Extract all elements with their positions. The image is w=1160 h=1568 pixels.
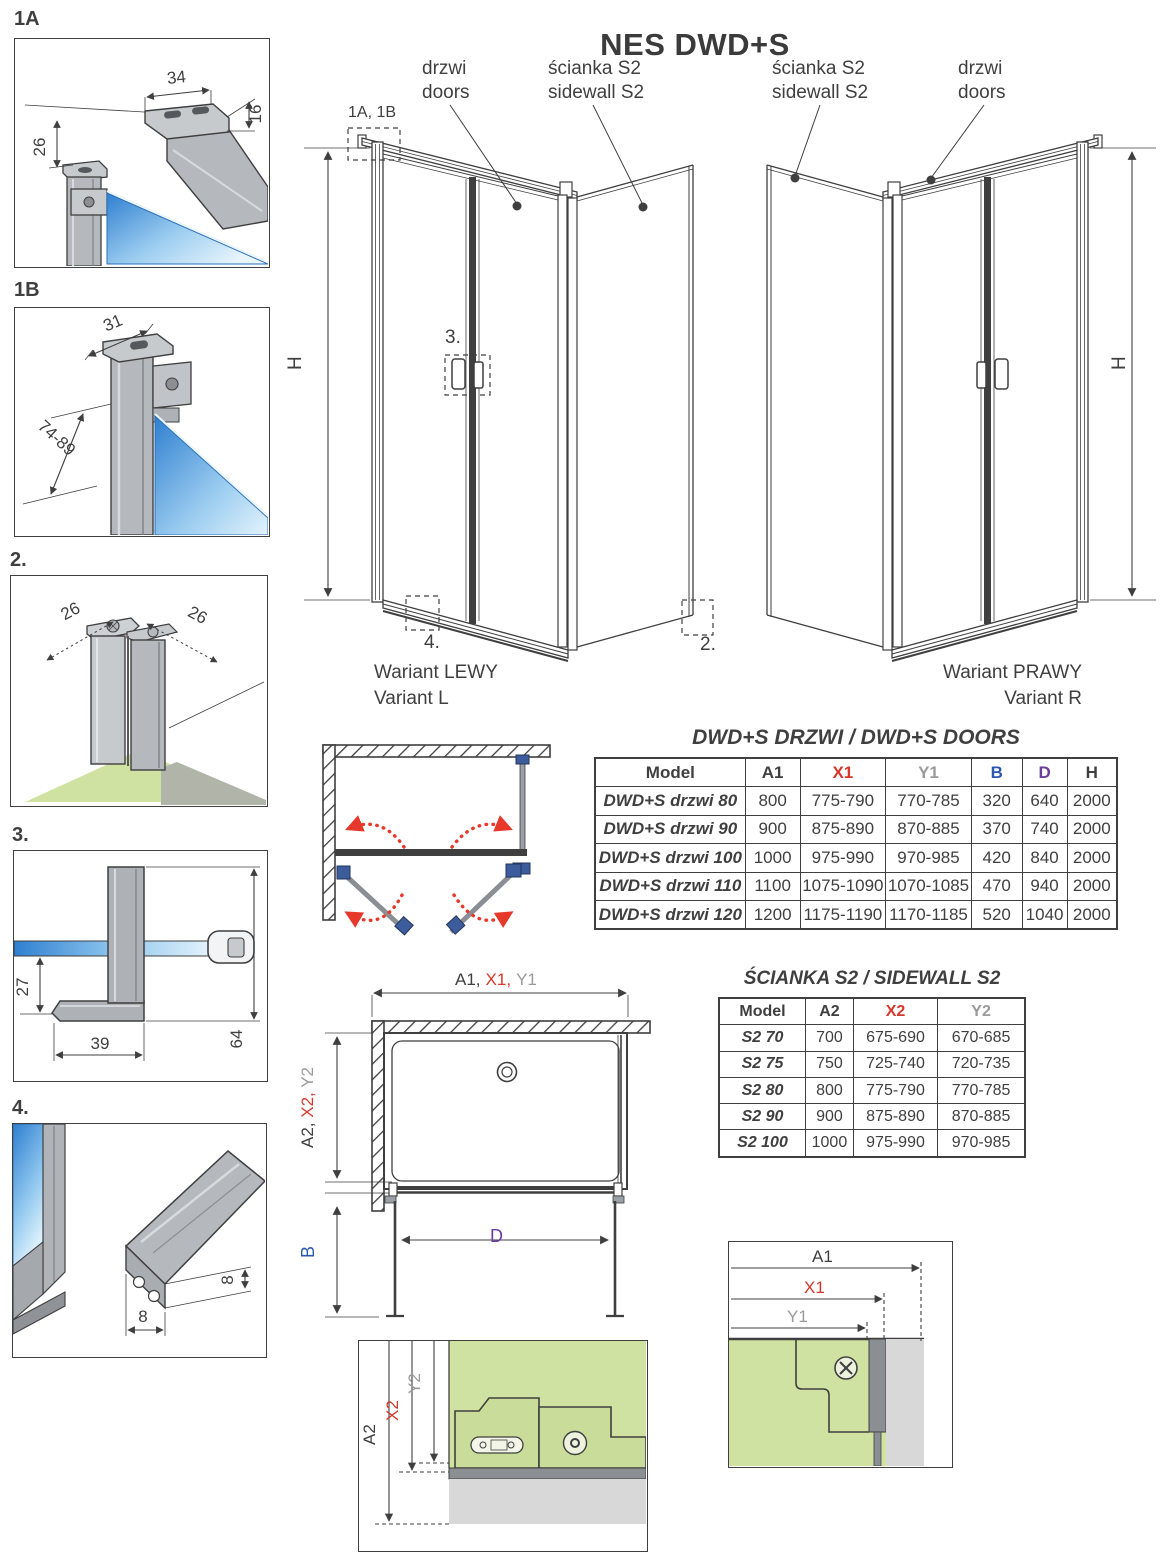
leader-dot (639, 203, 648, 212)
sidewall-glass (520, 761, 525, 851)
cell-x1: 775-790 (800, 787, 886, 815)
cell-a2: 1000 (806, 1130, 854, 1157)
glass-edge-strip (886, 1339, 924, 1466)
dim-label-x1-corner: X1 (804, 1278, 825, 1298)
door-handle (474, 362, 483, 388)
dim-y1: Y1 (516, 970, 537, 990)
cell-b: 420 (971, 844, 1022, 872)
label-sidewall-en-right: sidewall S2 (772, 82, 868, 104)
dim-64: 64 (227, 1030, 246, 1049)
dim-y2: Y2 (298, 1067, 317, 1088)
cell-h: 2000 (1067, 844, 1117, 872)
leader-dot (513, 202, 522, 211)
hinge (506, 864, 521, 877)
detail-1a-box: 34 16 26 (14, 38, 270, 268)
table-row: DWD+S drzwi 110 1100 1075-1090 1070-1085… (595, 872, 1117, 900)
caption-variant-left-pl: Wariant LEWY (374, 662, 498, 684)
detail-1a-drawing: 34 16 26 (15, 39, 268, 266)
detail-3-drawing: 27 39 64 (14, 851, 266, 1080)
dim-label-H-left: H (286, 356, 306, 370)
dim-74-89: 74-89 (34, 416, 79, 459)
cell-x1: 1075-1090 (800, 872, 886, 900)
table-row: S2 75 750 725-740 720-735 (719, 1051, 1025, 1077)
dim-39: 39 (91, 1034, 110, 1053)
dim-label-y2-mid: Y2 (405, 1373, 425, 1394)
cell-y1: 870-885 (886, 815, 972, 843)
label-doors-pl-left: drzwi (422, 58, 466, 80)
wall-profile (111, 348, 153, 535)
dim-26-right: 26 (185, 602, 211, 628)
swing-arc (454, 895, 509, 920)
dim-26-left: 26 (58, 598, 84, 624)
cell-d: 740 (1022, 815, 1067, 843)
cell-model: DWD+S drzwi 110 (595, 872, 745, 900)
detail-2-id: 2. (10, 549, 27, 572)
doors-table-section: DWD+S DRZWI / DWD+S DOORS Model A1 X1 Y1… (594, 725, 1118, 930)
ref-3: 3. (445, 327, 461, 349)
table-row: S2 100 1000 975-990 970-985 (719, 1130, 1025, 1157)
table-row: DWD+S drzwi 90 900 875-890 870-885 370 7… (595, 815, 1117, 843)
cell-x2: 975-990 (853, 1130, 937, 1157)
sidewall-table-header: Model A2 X2 Y2 (719, 998, 1025, 1025)
glass-panel (155, 416, 268, 535)
col-h: H (1067, 758, 1117, 787)
cell-y1: 1170-1185 (886, 900, 972, 929)
cell-a2: 800 (806, 1077, 854, 1103)
dim-label-H-right: H (1110, 356, 1130, 370)
door-meeting-gap (984, 177, 991, 624)
cell-a1: 1200 (745, 900, 800, 929)
wall-left (323, 745, 335, 920)
dim-label-a2x2y2: A2, X2, Y2 (298, 1067, 318, 1148)
wall-top (372, 1021, 650, 1033)
sidewall-table: Model A2 X2 Y2 S2 70 700 675-690 670-685… (718, 997, 1026, 1158)
detail-1a-id: 1A (14, 8, 40, 31)
cell-model: S2 70 (719, 1025, 806, 1051)
dim-a2: A2, (298, 1122, 317, 1148)
col-y1: Y1 (886, 758, 972, 787)
cell-y1: 970-985 (886, 844, 972, 872)
bracket-foot (52, 1001, 144, 1021)
door-stile (558, 195, 567, 647)
wall-stile (1077, 142, 1088, 602)
dim-label-a1x1y1: A1, X1, Y1 (455, 970, 537, 990)
dim-label-a1-corner: A1 (812, 1247, 833, 1267)
cell-y2: 770-785 (938, 1077, 1025, 1103)
cell-x2: 775-790 (853, 1077, 937, 1103)
detail-1b-id: 1B (14, 279, 40, 302)
corner-detail-box (728, 1241, 953, 1468)
profile-strip (449, 1468, 646, 1479)
label-sidewall-pl-right: ścianka S2 (772, 58, 865, 80)
cell-y2: 720-735 (938, 1051, 1025, 1077)
table-row: DWD+S drzwi 100 1000 975-990 970-985 420… (595, 844, 1117, 872)
glass-panel (13, 1124, 43, 1266)
variant-elevations-drawing (300, 55, 1160, 720)
detail-4-id: 4. (12, 1097, 29, 1120)
cell-y2: 670-685 (938, 1025, 1025, 1051)
wall-stile (372, 142, 383, 602)
cell-a1: 800 (745, 787, 800, 815)
door-handle (995, 359, 1008, 389)
dim-x2: X2, (298, 1092, 317, 1118)
cell-a2: 900 (806, 1104, 854, 1130)
sidewall-profile (883, 198, 892, 650)
shower-tray (384, 1033, 627, 1189)
cell-model: S2 90 (719, 1104, 806, 1130)
cell-a1: 1000 (745, 844, 800, 872)
label-doors-en-right: doors (958, 82, 1006, 104)
cell-model: S2 80 (719, 1077, 806, 1103)
cell-model: DWD+S drzwi 100 (595, 844, 745, 872)
wall-left (372, 1021, 384, 1211)
mount-detail-drawing (359, 1341, 646, 1550)
col-b: B (971, 758, 1022, 787)
ref-1a-1b: 1A, 1B (348, 104, 396, 122)
swing-arc (349, 895, 402, 920)
corner-detail-drawing (729, 1242, 951, 1466)
mount-detail-box (358, 1340, 648, 1552)
col-a2: A2 (806, 998, 854, 1025)
detail-2-box: 26 26 (10, 575, 268, 807)
sidewall-table-section: ŚCIANKA S2 / SIDEWALL S2 Model A2 X2 Y2 … (718, 967, 1026, 1158)
cell-x2: 725-740 (853, 1051, 937, 1077)
cell-h: 2000 (1067, 787, 1117, 815)
sidewall-table-title: ŚCIANKA S2 / SIDEWALL S2 (718, 967, 1026, 990)
table-row: S2 70 700 675-690 670-685 (719, 1025, 1025, 1051)
cell-b: 320 (971, 787, 1022, 815)
door-meeting-gap (469, 177, 476, 624)
dim-31: 31 (100, 310, 125, 335)
detail-3-box: 27 39 64 (13, 850, 268, 1082)
leader-dot (791, 174, 800, 183)
ref-2: 2. (700, 634, 716, 656)
detail-3-id: 3. (12, 824, 29, 847)
swing-arc (350, 824, 404, 847)
cell-y1: 770-785 (886, 787, 972, 815)
dim-26: 26 (30, 138, 49, 157)
detail-4-drawing: 8 8 (13, 1124, 265, 1356)
dim-label-d: D (490, 1226, 503, 1247)
col-a1: A1 (745, 758, 800, 787)
dim-16: 16 (246, 105, 265, 124)
dim-34: 34 (166, 67, 187, 88)
door-handle (977, 362, 986, 388)
detail-1b-box: 31 74-89 (14, 307, 270, 537)
cell-y2: 970-985 (938, 1130, 1025, 1157)
dim-label-y1-corner: Y1 (787, 1307, 808, 1327)
leader-dot (927, 176, 936, 185)
sidewall-profile (568, 198, 577, 650)
cell-x2: 875-890 (853, 1104, 937, 1130)
seal-strip-top (126, 1151, 265, 1284)
detail-4-box: 8 8 (12, 1123, 267, 1358)
dim-8-height: 8 (218, 1275, 237, 1284)
doors-table-title: DWD+S DRZWI / DWD+S DOORS (594, 725, 1118, 750)
doors-table-header: Model A1 X1 Y1 B D H (595, 758, 1117, 787)
bracket-bar (108, 867, 144, 1003)
doors-closed-line (335, 849, 527, 856)
tray-plan-drawing (315, 965, 690, 1335)
cell-model: DWD+S drzwi 90 (595, 815, 745, 843)
cell-d: 640 (1022, 787, 1067, 815)
cell-y2: 870-885 (938, 1104, 1025, 1130)
sidewall-connector (516, 755, 529, 764)
caption-variant-left-en: Variant L (374, 688, 449, 710)
col-y2: Y2 (938, 998, 1025, 1025)
profile-strip (869, 1339, 886, 1432)
detail-2-drawing: 26 26 (11, 576, 266, 805)
cell-x2: 675-690 (853, 1025, 937, 1051)
ref-box-corner (682, 600, 713, 635)
label-doors-pl-right: drzwi (958, 58, 1002, 80)
cell-h: 2000 (1067, 872, 1117, 900)
cell-d: 840 (1022, 844, 1067, 872)
cell-y1: 1070-1085 (886, 872, 972, 900)
col-d: D (1022, 758, 1067, 787)
dim-label-x2-mid: X2 (383, 1400, 403, 1421)
variant-left-drawing (304, 105, 713, 661)
glass-edge-strip (449, 1479, 646, 1524)
cell-a1: 1100 (745, 872, 800, 900)
cell-h: 2000 (1067, 900, 1117, 929)
cell-b: 470 (971, 872, 1022, 900)
cell-h: 2000 (1067, 815, 1117, 843)
cell-model: S2 75 (719, 1051, 806, 1077)
cell-model: DWD+S drzwi 80 (595, 787, 745, 815)
cell-b: 520 (971, 900, 1022, 929)
table-row: DWD+S drzwi 120 1200 1175-1190 1170-1185… (595, 900, 1117, 929)
label-sidewall-en-left: sidewall S2 (548, 82, 644, 104)
datasheet-page: NES DWD+S 1A (0, 0, 1160, 1568)
wall-plate (145, 104, 229, 139)
col-x1: X1 (800, 758, 886, 787)
cell-model: S2 100 (719, 1130, 806, 1157)
cell-x1: 975-990 (800, 844, 886, 872)
floor-shadow (161, 762, 266, 805)
cell-model: DWD+S drzwi 120 (595, 900, 745, 929)
cell-d: 940 (1022, 872, 1067, 900)
variant-right-drawing (767, 105, 1156, 661)
dim-label-a2-mid: A2 (360, 1424, 380, 1445)
corner-profile-right (131, 640, 165, 770)
door-handle (452, 359, 465, 389)
hinge (337, 866, 350, 879)
cell-a2: 750 (806, 1051, 854, 1077)
cell-x1: 1175-1190 (800, 900, 886, 929)
col-model: Model (719, 998, 806, 1025)
doors-table: Model A1 X1 Y1 B D H DWD+S drzwi 80 800 … (594, 757, 1118, 930)
swing-arc (452, 824, 508, 847)
cell-x1: 875-890 (800, 815, 886, 843)
door-stile (893, 195, 902, 647)
dim-x1: X1, (486, 970, 512, 990)
col-model: Model (595, 758, 745, 787)
cell-a2: 700 (806, 1025, 854, 1051)
table-row: DWD+S drzwi 80 800 775-790 770-785 320 6… (595, 787, 1117, 815)
dim-8-width: 8 (138, 1307, 147, 1326)
table-row: S2 90 900 875-890 870-885 (719, 1104, 1025, 1130)
table-row: S2 80 800 775-790 770-785 (719, 1077, 1025, 1103)
cell-d: 1040 (1022, 900, 1067, 929)
ref-4: 4. (424, 632, 440, 654)
cell-a1: 900 (745, 815, 800, 843)
dim-27: 27 (14, 978, 32, 997)
door-handle (395, 917, 413, 935)
col-x2: X2 (853, 998, 937, 1025)
caption-variant-right-pl: Wariant PRAWY (935, 662, 1082, 684)
detail-1b-drawing: 31 74-89 (15, 308, 268, 535)
cell-b: 370 (971, 815, 1022, 843)
dim-a1: A1, (455, 970, 481, 990)
dim-label-b: B (298, 1246, 318, 1258)
label-doors-en-left: doors (422, 82, 470, 104)
label-sidewall-pl-left: ścianka S2 (548, 58, 641, 80)
door-swing-plan (310, 735, 595, 965)
caption-variant-right-en: Variant R (935, 688, 1082, 710)
